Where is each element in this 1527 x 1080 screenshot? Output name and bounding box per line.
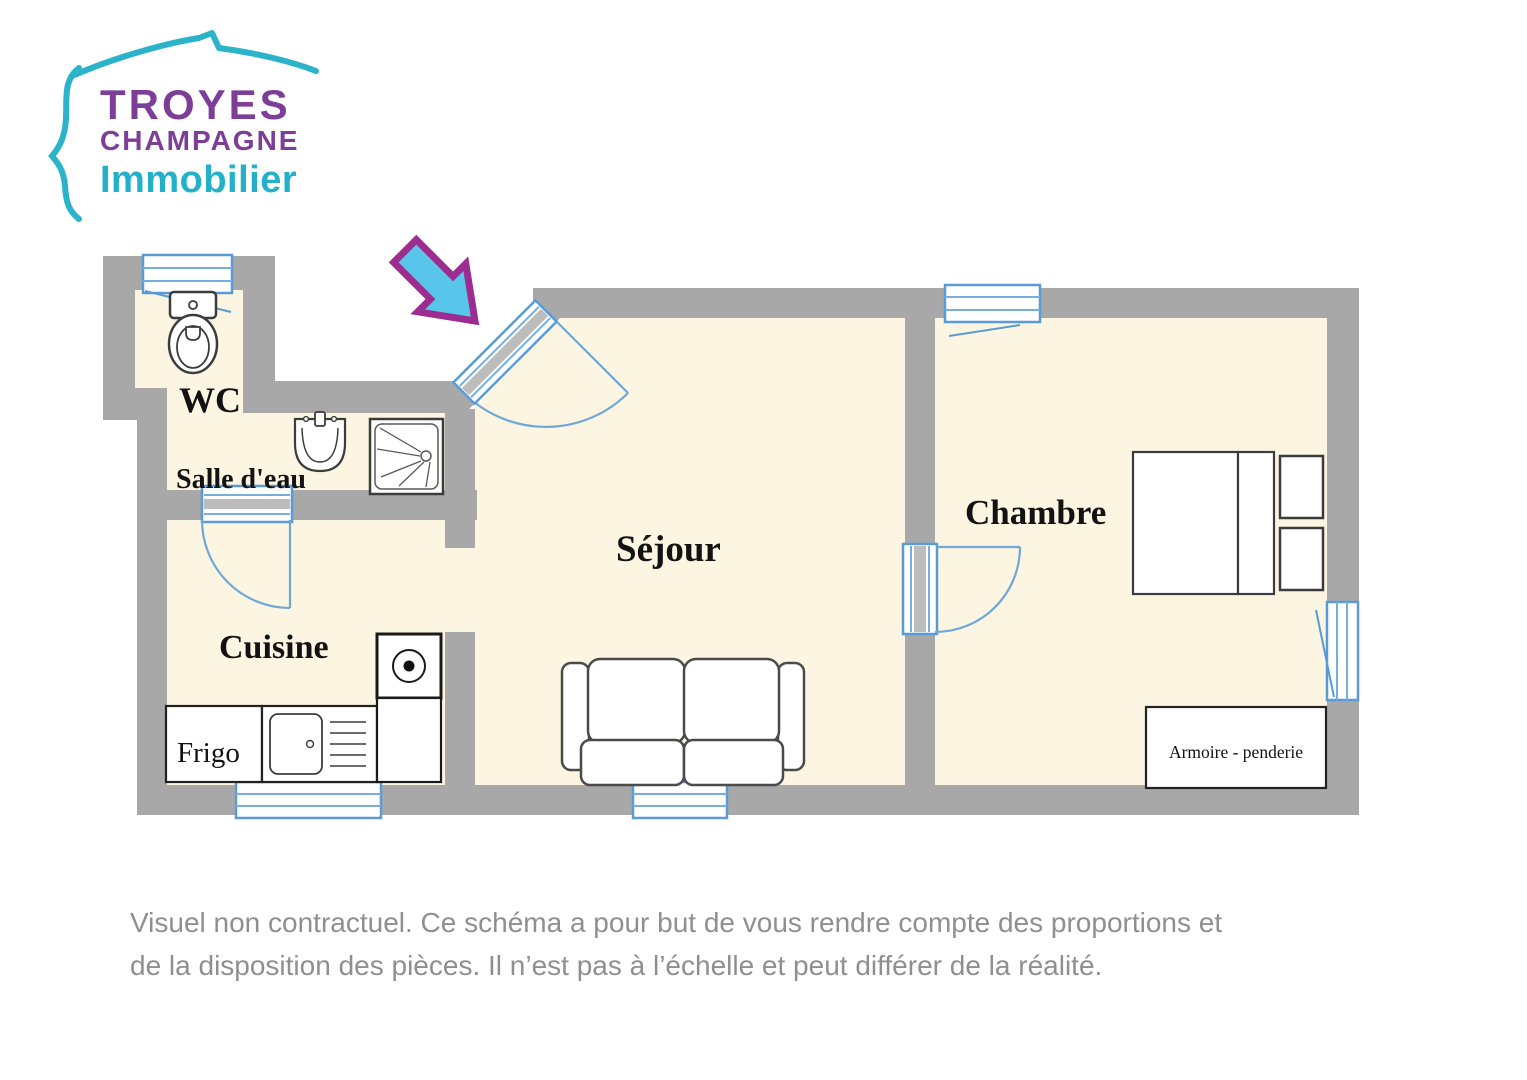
window — [143, 255, 232, 293]
cuisine-label: Cuisine — [219, 629, 329, 666]
wall — [445, 409, 475, 548]
stove-icon — [377, 634, 441, 782]
chambre-label: Chambre — [965, 493, 1106, 532]
washbasin-icon — [295, 412, 345, 471]
toilet-icon — [169, 292, 217, 373]
shower-icon — [370, 419, 443, 494]
salle-deau-label: Salle d'eau — [176, 464, 306, 495]
disclaimer-line-1: Visuel non contractuel. Ce schéma a pour… — [130, 901, 1410, 944]
wall — [905, 288, 935, 546]
entrance-arrow-icon — [381, 227, 499, 345]
wc-label: WC — [179, 380, 241, 420]
page: TROYES CHAMPAGNE Immobilier — [0, 0, 1527, 1080]
wall — [1327, 288, 1359, 815]
kitchen-sink-icon — [262, 706, 377, 782]
armoire-label: Armoire - penderie — [1169, 742, 1303, 762]
wall — [243, 381, 462, 413]
wall — [137, 416, 167, 789]
wall — [533, 288, 935, 318]
frigo-label: Frigo — [177, 737, 240, 769]
wall — [905, 632, 935, 785]
sofa-icon — [562, 659, 804, 785]
window — [633, 782, 727, 818]
wall — [103, 256, 135, 392]
window — [945, 285, 1040, 322]
wall — [103, 388, 167, 420]
sejour-label: Séjour — [616, 529, 721, 570]
wall — [445, 632, 475, 789]
window — [236, 782, 381, 818]
disclaimer-text: Visuel non contractuel. Ce schéma a pour… — [130, 901, 1410, 987]
disclaimer-line-2: de la disposition des pièces. Il n’est p… — [130, 944, 1410, 987]
